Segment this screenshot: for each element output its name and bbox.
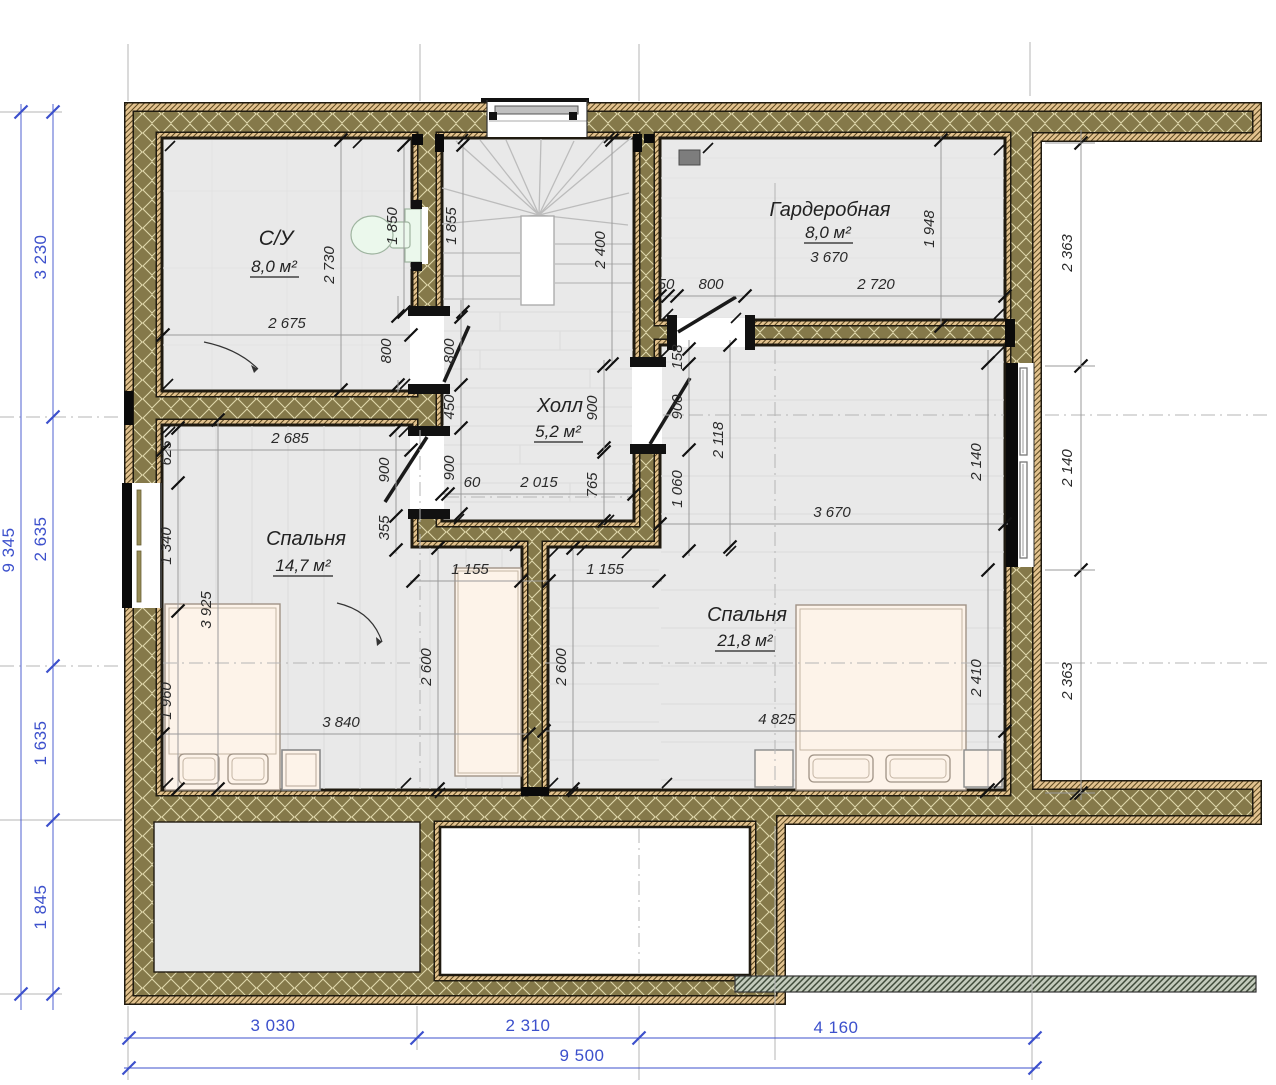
svg-text:900: 900 xyxy=(584,395,601,421)
svg-text:21,8 м²: 21,8 м² xyxy=(716,631,773,650)
svg-text:765: 765 xyxy=(584,472,601,498)
svg-text:2 363: 2 363 xyxy=(1059,234,1076,273)
svg-text:С/У: С/У xyxy=(259,227,296,250)
svg-text:1 155: 1 155 xyxy=(451,561,489,578)
svg-text:900: 900 xyxy=(441,455,458,481)
svg-text:3 670: 3 670 xyxy=(810,249,848,266)
svg-text:5,2 м²: 5,2 м² xyxy=(535,422,582,441)
svg-text:1 960: 1 960 xyxy=(158,682,175,720)
svg-text:9 345: 9 345 xyxy=(0,527,18,572)
svg-text:8,0 м²: 8,0 м² xyxy=(805,223,852,242)
svg-text:2 635: 2 635 xyxy=(31,516,50,561)
svg-text:1 340: 1 340 xyxy=(158,527,175,565)
svg-text:2 140: 2 140 xyxy=(968,443,985,482)
svg-text:3 230: 3 230 xyxy=(31,234,50,279)
svg-text:Холл: Холл xyxy=(536,395,583,417)
svg-text:3 670: 3 670 xyxy=(813,504,851,521)
svg-text:158: 158 xyxy=(669,344,686,370)
svg-text:2 675: 2 675 xyxy=(267,315,306,332)
svg-text:1 850: 1 850 xyxy=(384,207,401,245)
svg-text:2 410: 2 410 xyxy=(968,659,985,698)
svg-text:355: 355 xyxy=(376,515,393,541)
svg-text:900: 900 xyxy=(376,457,393,483)
svg-text:1 635: 1 635 xyxy=(31,720,50,765)
svg-text:Спальня: Спальня xyxy=(266,528,346,550)
svg-text:900: 900 xyxy=(669,394,686,420)
svg-text:3 840: 3 840 xyxy=(322,714,360,731)
svg-text:1 060: 1 060 xyxy=(669,470,686,508)
svg-text:2 015: 2 015 xyxy=(519,474,558,491)
svg-text:2 730: 2 730 xyxy=(321,246,338,285)
svg-text:4 825: 4 825 xyxy=(758,711,796,728)
svg-text:2 720: 2 720 xyxy=(856,276,895,293)
svg-text:2 363: 2 363 xyxy=(1059,662,1076,701)
svg-text:1 948: 1 948 xyxy=(921,210,938,248)
svg-text:Гардеробная: Гардеробная xyxy=(770,199,891,221)
svg-text:9 500: 9 500 xyxy=(559,1046,604,1065)
svg-text:14,7 м²: 14,7 м² xyxy=(275,556,331,575)
svg-text:450: 450 xyxy=(441,394,458,420)
svg-text:2 118: 2 118 xyxy=(710,421,727,459)
svg-text:1 155: 1 155 xyxy=(586,561,624,578)
svg-text:2 310: 2 310 xyxy=(505,1016,550,1035)
svg-text:800: 800 xyxy=(378,338,395,364)
svg-text:2 140: 2 140 xyxy=(1059,449,1076,488)
svg-text:2 685: 2 685 xyxy=(270,430,309,447)
svg-text:3 030: 3 030 xyxy=(250,1016,295,1035)
svg-text:60: 60 xyxy=(464,474,481,491)
svg-text:Спальня: Спальня xyxy=(707,604,787,626)
svg-text:800: 800 xyxy=(441,338,458,364)
svg-text:800: 800 xyxy=(698,276,724,293)
svg-text:8,0 м²: 8,0 м² xyxy=(251,257,298,276)
svg-text:1 845: 1 845 xyxy=(31,884,50,929)
svg-text:1 855: 1 855 xyxy=(443,207,460,245)
svg-text:2 600: 2 600 xyxy=(553,648,570,687)
svg-text:2 600: 2 600 xyxy=(418,648,435,687)
svg-text:50: 50 xyxy=(658,276,675,293)
svg-text:3 925: 3 925 xyxy=(198,591,215,629)
svg-text:2 400: 2 400 xyxy=(592,231,609,270)
svg-text:4 160: 4 160 xyxy=(813,1018,858,1037)
